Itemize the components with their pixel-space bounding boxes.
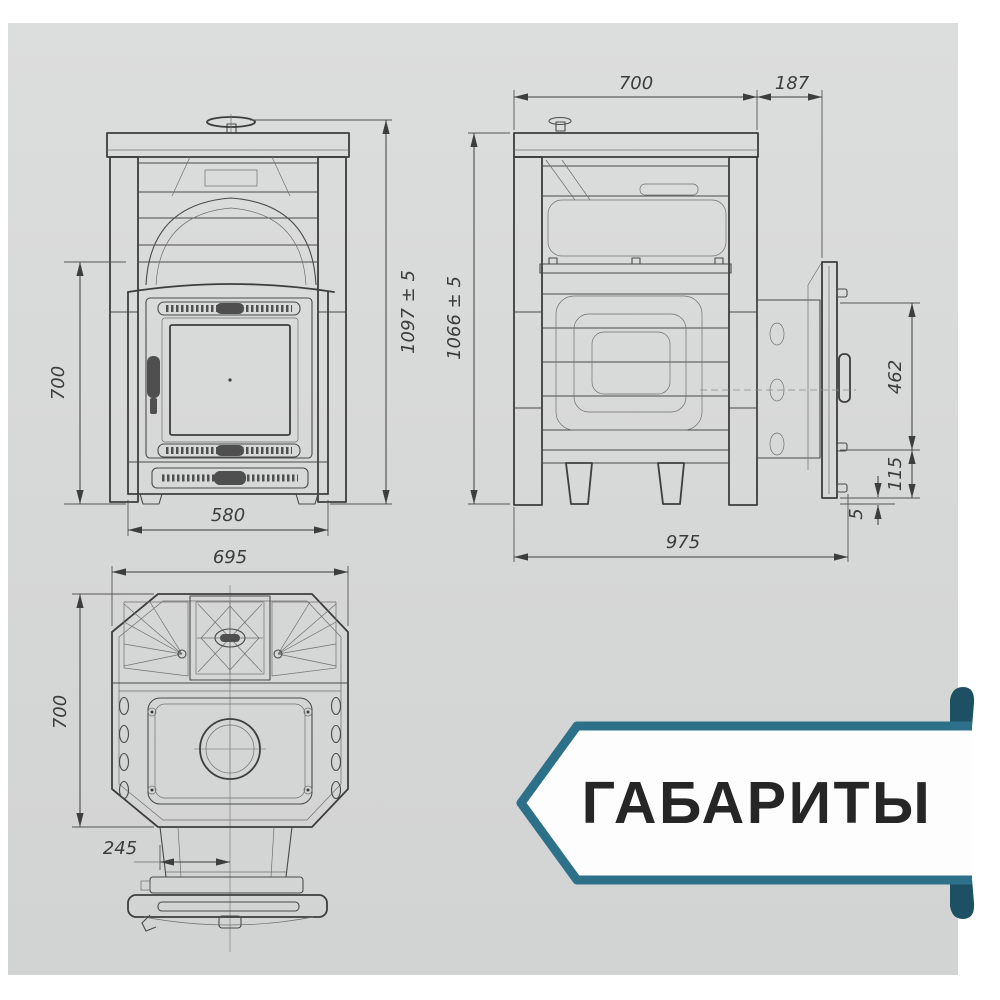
front-top-panel <box>107 133 349 157</box>
side-top-panel <box>514 133 758 157</box>
front-view-drawing: 1097 ± 5 700 580 <box>48 114 419 536</box>
top-chimney-opening <box>194 713 266 785</box>
front-door-module <box>128 284 334 504</box>
top-fuel-tunnel <box>128 827 327 931</box>
front-door-handle <box>147 356 160 398</box>
damper-knob <box>207 114 255 133</box>
dim-front-body-height: 700 <box>48 366 69 400</box>
dim-front-overall-height: 1097 ± 5 <box>398 270 419 354</box>
page: 1097 ± 5 700 580 <box>0 0 1000 1000</box>
front-right-column <box>318 157 346 502</box>
dim-side-overall-height: 1066 ± 5 <box>444 276 465 360</box>
banner-label: ГАБАРИТЫ <box>582 770 933 836</box>
side-internals <box>546 160 726 430</box>
top-ornamental-lid <box>190 596 270 680</box>
side-view-drawing: 700 187 1066 ± 5 462 115 5 <box>444 73 920 562</box>
top-right-fan-panel <box>272 602 336 676</box>
side-door-plate <box>822 262 837 498</box>
side-back-leg <box>658 463 684 504</box>
dim-side-door-height: 462 <box>885 360 906 394</box>
front-upper-vent-emblem <box>216 303 244 314</box>
dim-side-door-bottom-offset: 115 <box>885 457 906 491</box>
side-water-tank <box>548 200 726 256</box>
dim-top-tunnel-offset: 245 <box>103 838 137 859</box>
front-shroud <box>138 157 318 285</box>
side-back-column <box>729 157 757 505</box>
dim-front-body-width: 580 <box>211 505 245 526</box>
side-knob <box>549 118 571 132</box>
dim-side-overall-depth: 975 <box>666 532 700 553</box>
dim-top-overall-depth: 700 <box>50 695 71 729</box>
side-door-handle <box>839 354 850 402</box>
banner-bottom-fold <box>950 879 974 919</box>
side-front-column <box>514 157 542 505</box>
dim-top-overall-width: 695 <box>213 547 247 568</box>
top-lid-handle <box>220 634 240 642</box>
technical-drawing: 1097 ± 5 700 580 <box>0 0 1000 1000</box>
dim-side-floor-gap: 5 <box>846 508 867 519</box>
dim-side-body-depth: 700 <box>619 73 653 94</box>
front-dome <box>146 198 316 285</box>
front-left-column <box>110 157 138 502</box>
dim-side-door-offset: 187 <box>775 73 810 94</box>
side-front-leg <box>566 463 592 504</box>
banner-top-fold <box>950 687 974 727</box>
top-view-drawing: 695 700 245 <box>50 547 348 952</box>
dimensions-banner: ГАБАРИТЫ <box>521 687 974 919</box>
